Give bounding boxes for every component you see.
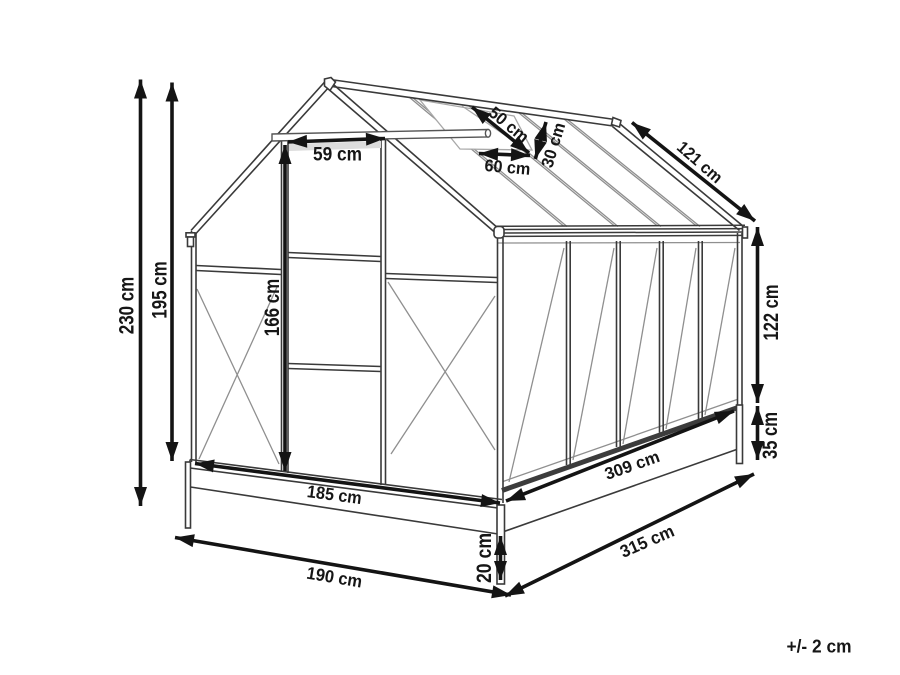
svg-text:166 cm: 166 cm: [261, 279, 284, 337]
svg-text:230 cm: 230 cm: [115, 277, 138, 335]
svg-text:+/- 2 cm: +/- 2 cm: [787, 636, 852, 657]
svg-text:59 cm: 59 cm: [313, 144, 362, 166]
svg-text:20 cm: 20 cm: [473, 533, 496, 583]
svg-text:122 cm: 122 cm: [760, 285, 783, 341]
svg-text:30 cm: 30 cm: [538, 120, 570, 170]
svg-text:195 cm: 195 cm: [148, 261, 171, 319]
svg-text:60 cm: 60 cm: [484, 156, 531, 179]
svg-text:35 cm: 35 cm: [759, 412, 782, 459]
